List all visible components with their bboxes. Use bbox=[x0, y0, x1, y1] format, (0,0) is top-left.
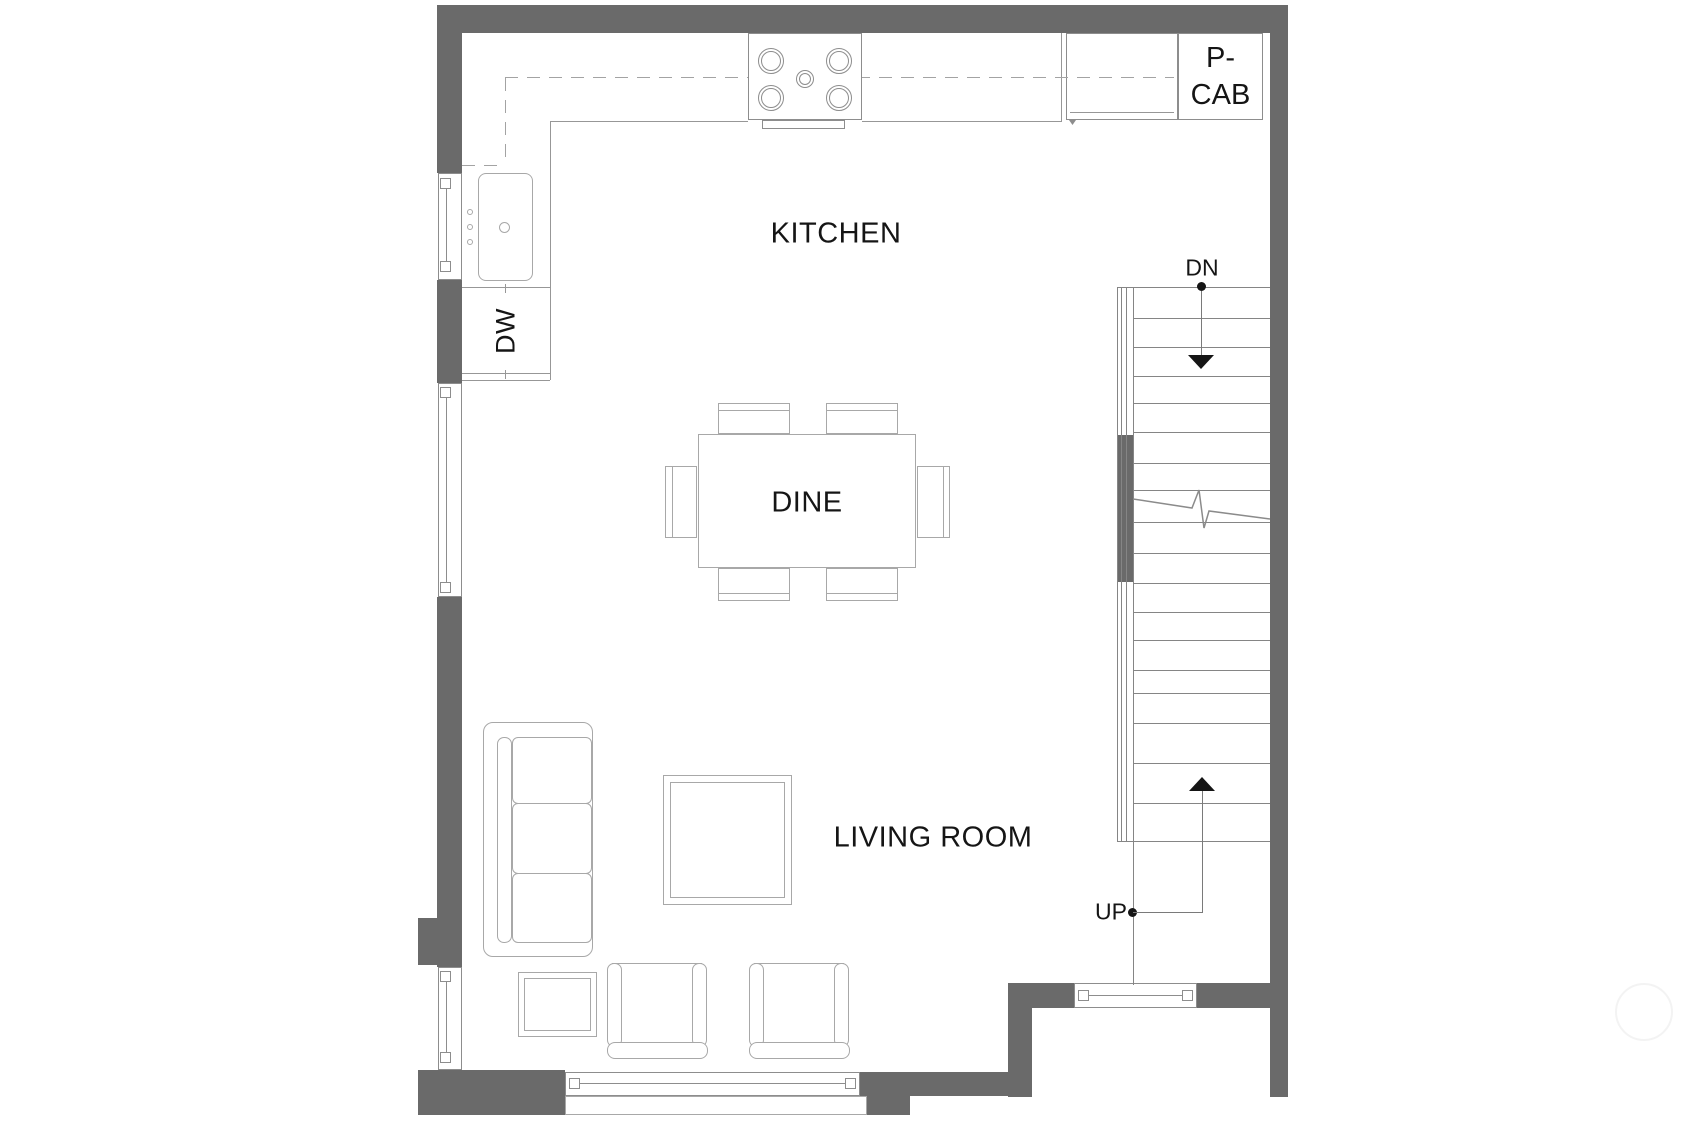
wall-step bbox=[1008, 983, 1032, 1097]
kitchen-label: KITCHEN bbox=[771, 218, 902, 251]
pantry-cabinet-label-line2: CAB bbox=[1191, 77, 1251, 114]
arrow-down-icon bbox=[1188, 355, 1214, 369]
pantry-cabinet-label: P- CAB bbox=[1178, 33, 1263, 120]
stair-tread bbox=[1133, 463, 1270, 464]
dining-chair bbox=[917, 466, 950, 538]
window bbox=[438, 383, 462, 597]
stair-tread bbox=[1133, 403, 1270, 404]
refrigerator-door-line bbox=[1070, 112, 1174, 113]
armchair-seat bbox=[754, 963, 844, 1043]
dining-chair-back-line bbox=[719, 593, 789, 594]
dining-chair-back-line bbox=[672, 467, 673, 537]
window-frame-square bbox=[1182, 990, 1193, 1001]
sofa-cushion bbox=[512, 873, 592, 943]
burner-icon bbox=[829, 88, 849, 108]
dine-label: DINE bbox=[771, 487, 842, 520]
dining-chair-back-line bbox=[719, 410, 789, 411]
stairs-up-label: UP bbox=[1095, 899, 1127, 926]
wall-left-bumpout bbox=[418, 918, 437, 965]
wall-right bbox=[1270, 5, 1288, 1097]
burner-icon bbox=[761, 88, 781, 108]
dishwasher-tick bbox=[505, 370, 506, 379]
stair-stringer-line bbox=[1121, 287, 1122, 841]
sink-control-icon bbox=[467, 224, 473, 230]
window-glazing-line bbox=[1089, 995, 1182, 996]
stair-side-wall bbox=[1117, 435, 1133, 582]
wall-top bbox=[437, 5, 1288, 33]
dining-chair bbox=[826, 403, 898, 434]
window-frame-square bbox=[440, 261, 451, 272]
window-frame-square bbox=[440, 387, 451, 398]
pantry-cabinet-label-line1: P- bbox=[1206, 40, 1235, 77]
upper-cabinet-dashed-line bbox=[505, 78, 506, 166]
stair-break-line bbox=[1133, 478, 1270, 540]
watermark-circle bbox=[1615, 983, 1673, 1041]
stairs-up-path bbox=[1133, 912, 1202, 913]
dining-chair-back-line bbox=[827, 593, 897, 594]
stair-tread bbox=[1133, 670, 1270, 671]
window-frame-square bbox=[440, 1052, 451, 1063]
wall-bottom-right-b bbox=[1197, 983, 1270, 1008]
window-frame-square bbox=[845, 1078, 856, 1089]
window-bay-sill bbox=[565, 1096, 867, 1115]
counter-edge bbox=[550, 121, 748, 122]
stair-tread bbox=[1133, 583, 1270, 584]
armchair-back bbox=[607, 1042, 708, 1059]
sofa-backrest bbox=[497, 737, 512, 943]
armchair-arm bbox=[834, 963, 849, 1047]
window-frame-square bbox=[569, 1078, 580, 1089]
sink-control-icon bbox=[467, 239, 473, 245]
stair-tread bbox=[1133, 763, 1270, 764]
arrow-up-icon bbox=[1189, 777, 1215, 791]
stairs-down-dot bbox=[1197, 282, 1206, 291]
window-glazing-line bbox=[446, 189, 447, 261]
burner-icon bbox=[761, 51, 781, 71]
living-room-label: LIVING ROOM bbox=[834, 822, 1033, 855]
stair-tread bbox=[1133, 723, 1270, 724]
burner-icon bbox=[829, 51, 849, 71]
dining-chair bbox=[718, 403, 790, 434]
stair-top-edge bbox=[1117, 287, 1270, 288]
armchair-arm bbox=[749, 963, 764, 1047]
stairs-down-label: DN bbox=[1185, 255, 1218, 282]
stair-stringer-line bbox=[1117, 287, 1118, 841]
wall-bottom-right-a bbox=[1032, 983, 1074, 1008]
wall-left-segment bbox=[437, 33, 462, 173]
counter-edge bbox=[462, 373, 550, 374]
stairs-up-path bbox=[1202, 791, 1203, 913]
window-frame-square bbox=[440, 178, 451, 189]
stair-tread bbox=[1133, 693, 1270, 694]
wall-left-segment bbox=[437, 280, 462, 383]
stair-stringer-line bbox=[1133, 287, 1134, 841]
counter-edge bbox=[862, 121, 1062, 122]
counter-edge bbox=[462, 380, 550, 381]
window-glazing-line bbox=[580, 1083, 845, 1084]
wall-left-segment bbox=[437, 597, 462, 967]
floor-plan: P- CAB DW DN UP bbox=[0, 0, 1697, 1131]
window-frame-square bbox=[440, 971, 451, 982]
dining-chair bbox=[718, 568, 790, 601]
sink-control-icon bbox=[467, 209, 473, 215]
window-frame-square bbox=[440, 582, 451, 593]
window-frame-square bbox=[1078, 990, 1089, 1001]
dining-chair-back-line bbox=[827, 410, 897, 411]
side-table-inner bbox=[524, 978, 591, 1031]
stair-tread bbox=[1133, 432, 1270, 433]
armchair-seat bbox=[612, 963, 702, 1043]
sofa-cushion bbox=[512, 803, 592, 874]
oven-handle bbox=[762, 120, 845, 129]
coffee-table-inner bbox=[670, 782, 785, 898]
sofa-cushion bbox=[512, 737, 592, 804]
dining-chair-back-line bbox=[943, 467, 944, 537]
dishwasher-label: DW bbox=[491, 308, 522, 354]
dining-chair bbox=[665, 466, 697, 538]
stair-bottom-edge bbox=[1117, 841, 1270, 842]
dishwasher-tick bbox=[505, 284, 506, 293]
counter-edge bbox=[550, 121, 551, 380]
dining-chair bbox=[826, 568, 898, 601]
armchair-arm bbox=[692, 963, 707, 1047]
cooktop-knob-icon bbox=[799, 73, 811, 85]
armchair-arm bbox=[607, 963, 622, 1047]
stair-tread bbox=[1133, 612, 1270, 613]
stair-tread bbox=[1133, 553, 1270, 554]
wall-bay-cap bbox=[867, 1096, 910, 1115]
wall-bottom-band bbox=[860, 1072, 1030, 1096]
stair-stringer-line bbox=[1126, 287, 1127, 841]
window-glazing-line bbox=[446, 982, 447, 1052]
upper-cabinet-dashed-line bbox=[462, 165, 505, 166]
armchair-back bbox=[749, 1042, 850, 1059]
stair-tread bbox=[1133, 640, 1270, 641]
refrigerator-hinge-mark bbox=[1069, 120, 1076, 125]
counter-edge bbox=[462, 287, 550, 288]
stair-tread bbox=[1133, 376, 1270, 377]
faucet-icon bbox=[499, 222, 510, 233]
window bbox=[565, 1072, 860, 1096]
wall-corner-block bbox=[418, 1070, 565, 1115]
stairs-down-path bbox=[1201, 291, 1202, 355]
window-glazing-line bbox=[446, 398, 447, 582]
